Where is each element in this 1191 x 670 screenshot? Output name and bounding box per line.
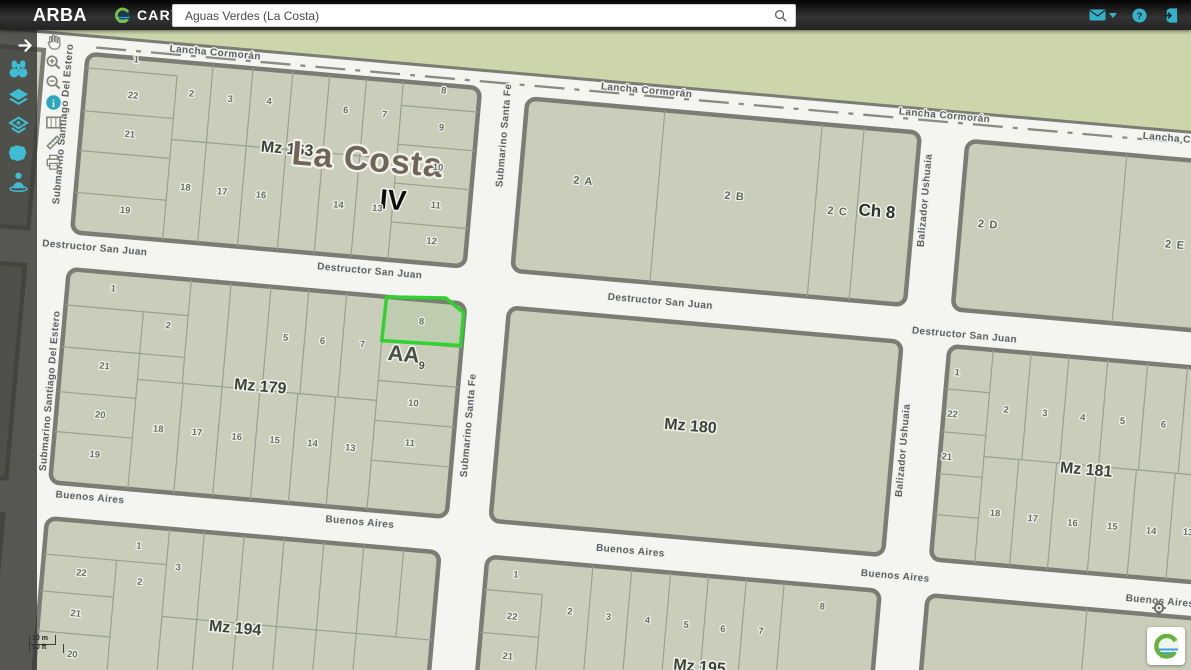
map-tools: i bbox=[44, 33, 66, 172]
parcel-label: 10 bbox=[408, 398, 419, 410]
parcel-label: 7 bbox=[758, 626, 764, 637]
map-canvas[interactable]: Lancha CormoránLancha CormoránLancha Cor… bbox=[0, 0, 1191, 670]
mail-button[interactable] bbox=[1089, 9, 1117, 21]
parcel-label: 3 bbox=[227, 94, 233, 105]
parcel-label: 16 bbox=[231, 431, 242, 443]
expand-arrow-icon[interactable] bbox=[18, 38, 33, 53]
parcel-label: 13 bbox=[345, 442, 356, 454]
sidebar bbox=[0, 30, 37, 670]
parcel-label: 7 bbox=[359, 339, 365, 350]
binoculars-icon[interactable] bbox=[7, 58, 30, 81]
caret-down-icon bbox=[1109, 13, 1117, 18]
print-icon[interactable] bbox=[44, 153, 66, 172]
svg-text:?: ? bbox=[1137, 10, 1143, 20]
parcel-label: 2 bbox=[165, 320, 171, 331]
parcel-label: 21 bbox=[99, 361, 111, 373]
search-icon[interactable] bbox=[774, 9, 787, 22]
parcel-label: 14 bbox=[333, 199, 345, 211]
zoom-out-icon[interactable] bbox=[44, 73, 66, 92]
parcel-label: 8 bbox=[418, 316, 424, 327]
measure-icon[interactable] bbox=[44, 133, 66, 152]
parcel-label: 15 bbox=[269, 435, 281, 447]
parcel-label: 8 bbox=[441, 85, 447, 96]
parcel-label: 2 C bbox=[827, 205, 849, 219]
parcel-label: 6 bbox=[319, 336, 325, 347]
subblock-label: AA bbox=[387, 340, 421, 368]
parcel-label: 14 bbox=[307, 438, 319, 450]
parcel-label: 2 bbox=[188, 88, 194, 99]
freehand-area-icon[interactable] bbox=[7, 142, 30, 165]
parcel-label: 9 bbox=[438, 122, 444, 133]
parcel-label: 8 bbox=[819, 601, 825, 612]
parcel-label: 11 bbox=[404, 438, 416, 450]
parcel-label: 18 bbox=[152, 423, 163, 435]
zoom-in-icon[interactable] bbox=[44, 53, 66, 72]
parcel-label: 20 bbox=[66, 649, 77, 661]
carto-attribution-icon bbox=[1152, 632, 1181, 661]
parcel-label: 21 bbox=[124, 129, 136, 141]
parcel-label: 2 E bbox=[1165, 238, 1186, 252]
street-view-icon[interactable] bbox=[7, 170, 30, 193]
layers-select-icon[interactable] bbox=[7, 114, 30, 137]
parcel-label: 20 bbox=[94, 409, 105, 421]
parcel-label: 19 bbox=[89, 449, 100, 461]
parcel-label: 22 bbox=[76, 567, 87, 579]
parcel-label: 16 bbox=[1067, 518, 1078, 530]
carto-attribution-button[interactable] bbox=[1147, 627, 1185, 665]
parcel-label: 17 bbox=[191, 427, 202, 439]
chacra-label: Ch 8 bbox=[858, 200, 896, 222]
parcel-label: 17 bbox=[1027, 513, 1038, 525]
parcel-label: 2 A bbox=[573, 175, 594, 189]
map-extent-icon[interactable] bbox=[44, 113, 66, 132]
parcel-label: 6 bbox=[1160, 419, 1166, 430]
help-icon[interactable]: ? bbox=[1132, 8, 1147, 23]
parcel-label: 19 bbox=[119, 205, 130, 217]
parcel-label: 13 bbox=[1182, 527, 1191, 539]
parcel-label: 21 bbox=[941, 451, 953, 463]
parcel-label: 12 bbox=[426, 236, 437, 248]
arba-logo[interactable]: ARBA bbox=[33, 5, 87, 26]
layers-icon[interactable] bbox=[7, 86, 30, 109]
poi-marker-icon bbox=[1152, 601, 1166, 615]
parcel-label: 3 bbox=[1042, 408, 1048, 419]
parcel-label: 3 bbox=[175, 562, 181, 573]
parcel-label: 13 bbox=[371, 203, 382, 215]
topbar-actions: ? bbox=[1089, 0, 1179, 30]
parcel-label: 2 bbox=[567, 606, 573, 617]
parcel-label: 16 bbox=[255, 190, 266, 202]
top-bar: ARBA CARTO ? bbox=[0, 0, 1191, 30]
mail-icon bbox=[1089, 9, 1106, 21]
svg-text:i: i bbox=[52, 99, 55, 110]
parcel-label: 21 bbox=[502, 651, 514, 663]
parcel-label: 14 bbox=[1145, 525, 1157, 537]
pan-hand-icon[interactable] bbox=[44, 33, 66, 52]
parcel-label: 21 bbox=[70, 608, 82, 620]
parcel-label: 7 bbox=[381, 109, 387, 120]
subblock-parcel-label: 9 bbox=[418, 360, 425, 372]
info-icon[interactable]: i bbox=[44, 93, 66, 112]
parcel-label: 18 bbox=[989, 508, 1000, 520]
search-box bbox=[172, 4, 796, 27]
carto-globe-icon bbox=[113, 6, 132, 25]
parcel-label: 18 bbox=[180, 182, 191, 194]
parcel-label: 22 bbox=[506, 611, 517, 623]
section-label: IV bbox=[379, 183, 408, 216]
carto-text-bold: CAR bbox=[137, 7, 171, 23]
parcel-label: 11 bbox=[430, 200, 442, 212]
parcel-label: 2 D bbox=[977, 218, 999, 232]
parcel-label: 2 bbox=[1003, 405, 1009, 416]
parcel-label: 22 bbox=[127, 90, 138, 102]
parcel-label: 2 bbox=[137, 577, 143, 588]
logout-icon[interactable] bbox=[1162, 7, 1179, 24]
parcel-label: 17 bbox=[216, 186, 227, 198]
parcel-label: 3 bbox=[605, 612, 611, 623]
parcel-label: 2 B bbox=[724, 190, 746, 204]
search-input[interactable] bbox=[173, 9, 774, 23]
parcel-label: 15 bbox=[1107, 521, 1119, 533]
parcel-label: 22 bbox=[947, 409, 958, 421]
parcel-label: 6 bbox=[720, 624, 726, 635]
parcel-label: 10 bbox=[432, 162, 443, 174]
parcel-label: 6 bbox=[343, 105, 349, 116]
